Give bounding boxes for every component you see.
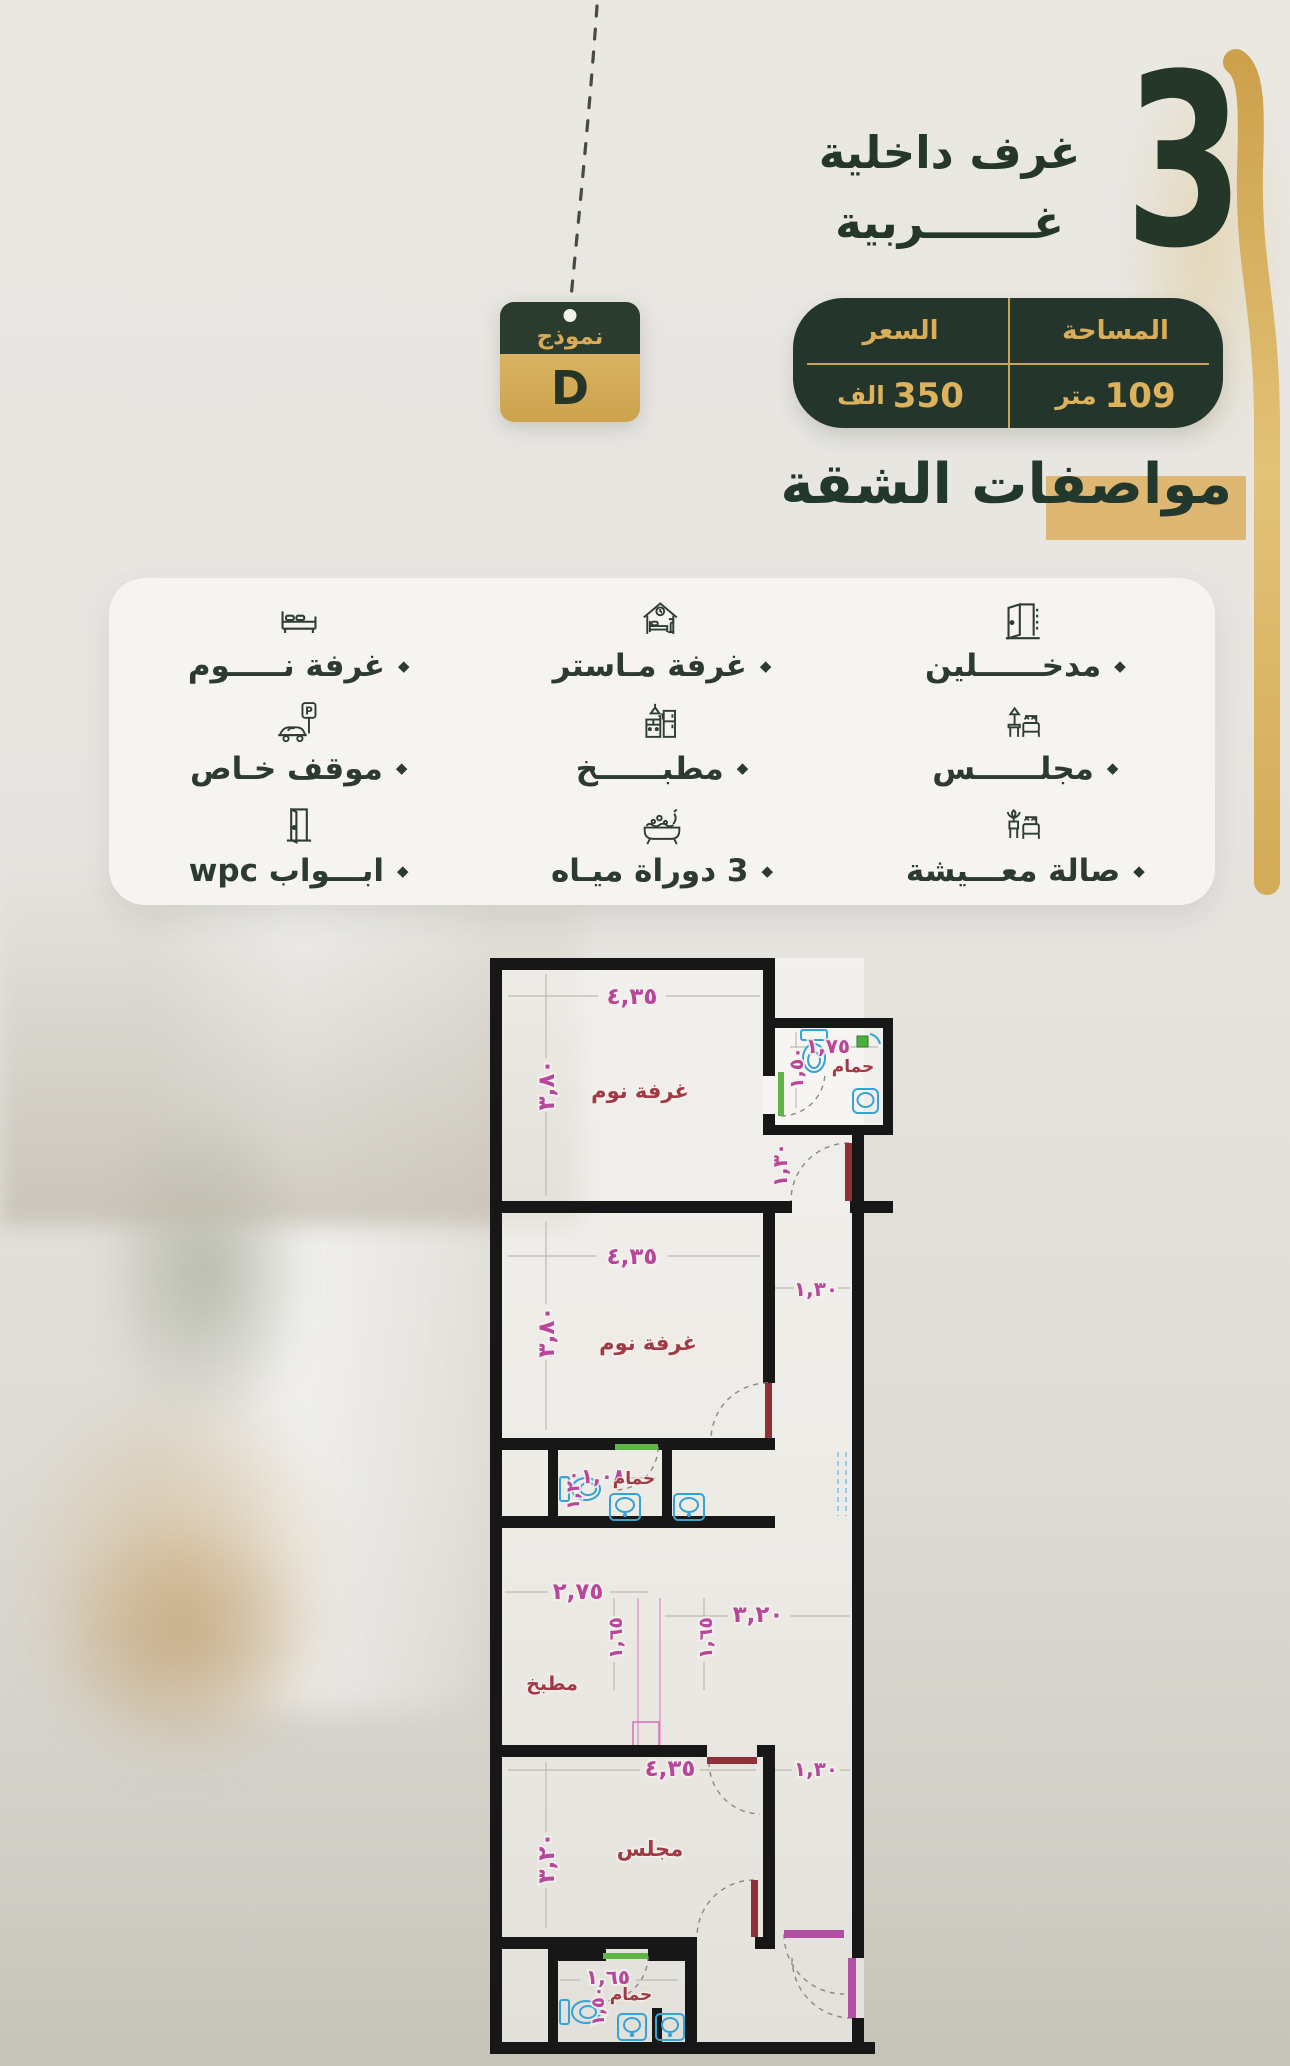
feature-label: ابـــواب wpc: [189, 853, 384, 889]
dashed-leader-line: [571, 6, 597, 298]
parking-icon: P: [271, 697, 327, 749]
dim-bath1-height: ١,٥٠: [786, 1047, 808, 1089]
feature-living-hall: ◆ صالة معـــيشة: [844, 793, 1207, 895]
section-title: مواصفات الشقة: [780, 452, 1232, 517]
dim-majlis-height: ٣,٢٠: [534, 1833, 560, 1884]
dim-hall-2: ١,٣٠: [794, 1277, 838, 1301]
feature-bedroom: ◆ غرفة نـــــوم: [117, 588, 480, 690]
dim-kitchen-width: ٢,٧٥: [553, 1579, 604, 1605]
door-icon: [271, 799, 327, 851]
feature-wpc-doors: ◆ ابـــواب wpc: [117, 793, 480, 895]
bathtub-icon: [634, 799, 690, 851]
parking-letter: P: [305, 705, 313, 717]
red-door-2: [765, 1383, 772, 1438]
feature-majlis: ◆ مجلــــــس: [844, 690, 1207, 792]
room-bath-3: حمام: [610, 1985, 653, 2005]
feature-label: مجلــــــس: [932, 751, 1094, 787]
feature-parking: P ◆ موقف خـاص: [117, 690, 480, 792]
model-badge: نموذج D: [500, 302, 640, 422]
dim-bath1-width: ١,٧٥: [806, 1034, 850, 1058]
red-door-4: [751, 1880, 758, 1937]
hero-line-2: غـــــــربية: [819, 188, 1081, 258]
floor-plan: ٤,٣٥ ٣,٨٠ غرفة نوم ١,٧٥ ١,٥٠ حمام ١,٣٠ ٤…: [480, 940, 900, 2066]
feature-bathrooms: ◆ 3 دوراة ميـاه: [480, 793, 843, 895]
red-door-1: [845, 1143, 852, 1201]
room-majlis: مجلس: [617, 1837, 683, 1861]
green-door-1: [778, 1072, 784, 1116]
real-estate-flyer: 3 غرف داخلية غـــــــربية نموذج D المساح…: [0, 0, 1290, 2066]
hero: 3 غرف داخلية غـــــــربية: [811, 58, 1240, 267]
gold-curve: [1236, 62, 1267, 882]
features-card: ◆ مدخــــــلين ◆ غرفة مـاستر: [109, 578, 1215, 905]
dim-bed1-width: ٤,٣٥: [607, 984, 658, 1010]
feature-label: صالة معـــيشة: [906, 853, 1120, 889]
dim-hall-1: ١,٣٠: [768, 1143, 792, 1187]
master-bed-icon: [634, 594, 690, 646]
open-door-icon: [997, 594, 1053, 646]
feature-label: 3 دوراة ميـاه: [551, 853, 749, 889]
stats-table: المساحة السعر 109 متر 350 الف: [793, 298, 1223, 428]
dim-bed2-width: ٤,٣٥: [607, 1244, 658, 1270]
kitchen-icon: [634, 697, 690, 749]
feature-label: غرفة نـــــوم: [188, 648, 385, 684]
badge-dot: [564, 309, 577, 322]
section-title-wrap: مواصفات الشقة: [780, 452, 1232, 532]
dim-bed1-height: ٣,٨٠: [534, 1060, 560, 1111]
living-sofa-icon: [997, 799, 1053, 851]
dim-kitchen-1: ١,٦٥: [605, 1617, 627, 1659]
dim-kitchen-2: ١,٦٥: [695, 1617, 717, 1659]
feature-label: مدخــــــلين: [925, 648, 1101, 684]
feature-label: موقف خـاص: [190, 751, 383, 787]
badge-label: نموذج: [537, 324, 604, 350]
entrance-door-1: [784, 1930, 844, 1938]
dim-kitchen-top: ٣,٢٠: [733, 1602, 784, 1628]
price-value: 350 الف: [793, 363, 1008, 428]
red-door-3: [707, 1757, 757, 1764]
badge-model-letter: D: [500, 354, 640, 422]
sofa-icon: [997, 697, 1053, 749]
feature-label: غرفة مـاستر: [553, 648, 747, 684]
green-door-2: [615, 1444, 658, 1450]
big-number: 3: [1125, 58, 1240, 267]
room-bedroom-1: غرفة نوم: [591, 1079, 689, 1103]
dim-bath2-height: ١,٢٠: [563, 1470, 584, 1510]
area-header: المساحة: [1062, 316, 1169, 346]
hero-line-1: غرف داخلية: [819, 118, 1081, 188]
green-door-3: [603, 1953, 648, 1959]
bed-icon: [271, 594, 327, 646]
dim-bath3-height: ١,٥٠: [588, 1986, 609, 2026]
room-kitchen: مطبخ: [526, 1673, 578, 1695]
dim-majlis-hall: ١,٣٠: [794, 1757, 838, 1781]
feature-kitchen: ◆ مطبــــــخ: [480, 690, 843, 792]
room-bedroom-2: غرفة نوم: [599, 1331, 697, 1355]
feature-master-room: ◆ غرفة مـاستر: [480, 588, 843, 690]
area-value: 109 متر: [1008, 363, 1223, 428]
diamond-bullet: ◆: [1114, 659, 1126, 674]
green-marker: [857, 1036, 868, 1047]
room-bath-2: حمام: [613, 1469, 656, 1489]
dim-majlis-width: ٤,٣٥: [645, 1756, 696, 1782]
entrance-door-2: [848, 1958, 856, 2018]
stats-horizontal-divider: [807, 363, 1209, 365]
price-header: السعر: [863, 316, 939, 346]
room-bath-1: حمام: [832, 1057, 875, 1077]
feature-entrances: ◆ مدخــــــلين: [844, 588, 1207, 690]
dim-bed2-height: ٣,٨٠: [534, 1307, 560, 1358]
feature-label: مطبــــــخ: [576, 751, 724, 787]
